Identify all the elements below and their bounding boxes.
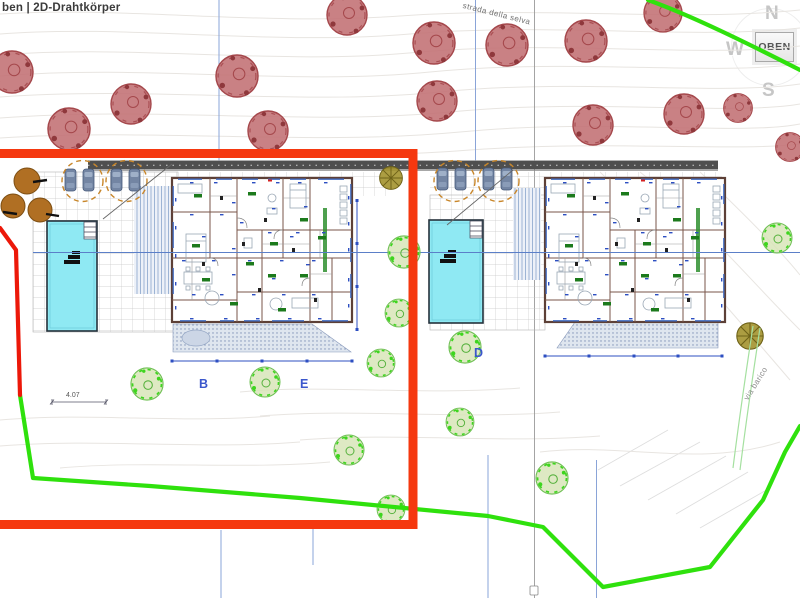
car-icon [65,169,76,191]
cad-viewport[interactable]: N W S OBEN [0,0,800,598]
pool-right [429,220,483,323]
tree-green-icon [762,223,792,253]
unit-label-b: B [199,377,208,391]
building-right-floor-plan [545,178,725,322]
tree-green-icon [367,349,395,377]
pool-left [47,221,97,331]
tree-brown-icon [1,194,25,218]
unit-label-e: E [300,377,308,391]
tree-green-icon [131,368,163,400]
car-icon [83,169,94,191]
tree-red-icon [111,84,151,124]
site-plan-drawing [0,0,800,598]
tree-red-icon [48,108,90,150]
tree-red-icon [486,24,528,66]
tree-red-icon [776,133,800,162]
tree-green-icon [334,435,364,465]
tree-red-icon [0,51,33,93]
tree-red-icon [327,0,367,35]
unit-label-d: D [474,346,483,360]
road-band [88,161,718,171]
tree-red-icon [573,105,613,145]
property-boundary-red [0,228,20,395]
car-icon [437,168,448,190]
view-mode-label: ben | 2D-Drahtkörper [2,2,120,14]
car-icon [111,169,122,191]
car-icon [129,169,140,191]
building-left-floor-plan [172,178,352,322]
tree-red-icon [664,94,704,134]
tree-green-icon [536,462,568,494]
tree-green-icon [250,367,280,397]
dimension-4-07 [50,399,108,405]
property-boundary-green [648,0,800,70]
tree-red-icon [413,22,455,64]
tree-olive-icon [380,167,403,190]
car-icon [455,168,466,190]
tree-green-icon [446,408,474,436]
tree-red-icon [417,81,457,121]
trees-red [0,0,800,161]
tree-red-icon [724,94,753,123]
tree-red-icon [248,111,288,151]
tree-red-icon [216,55,258,97]
pool-ladder-icon [84,222,96,239]
pool-ladder-icon [470,221,482,238]
tree-red-icon [565,20,607,62]
dimension-label: 4.07 [66,392,80,399]
